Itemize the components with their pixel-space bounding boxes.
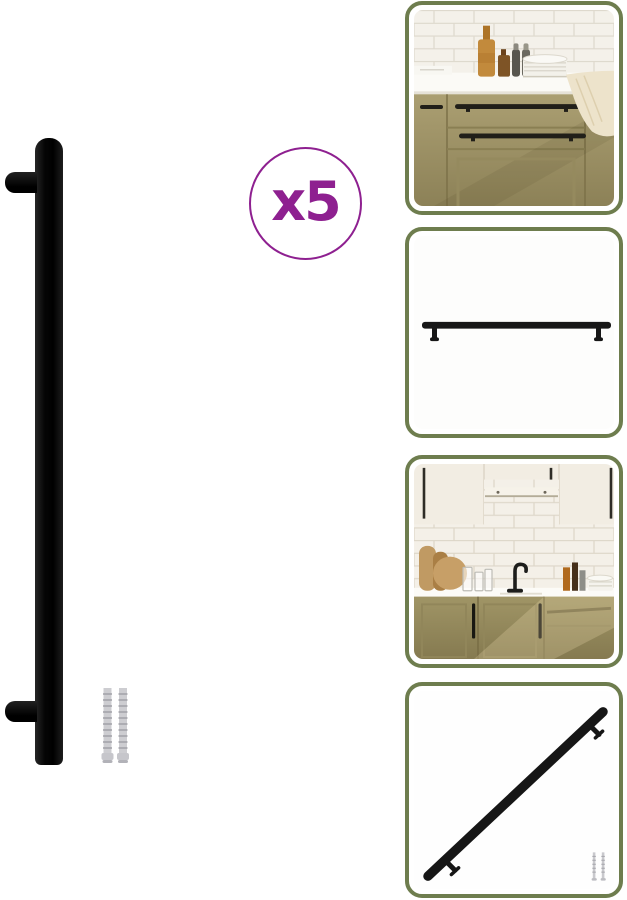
gallery-thumbnail-handle-diagonal[interactable]: [405, 682, 623, 898]
gallery-thumbnail-kitchen-sink[interactable]: [405, 455, 623, 668]
product-image-canvas: x5: [0, 0, 627, 900]
handle-top-post: [5, 172, 37, 193]
handle-bar: [35, 138, 63, 765]
quantity-badge: x5: [249, 147, 362, 260]
range-hood: [485, 487, 558, 496]
handle-horizontal-photo: [414, 236, 614, 429]
plate-stack: [523, 55, 567, 77]
handle-diagonal-photo: [414, 691, 614, 889]
quantity-label: x5: [271, 175, 339, 233]
mounting-screws-icon: [99, 686, 135, 770]
gallery-thumbnail-handle-horizontal[interactable]: [405, 227, 623, 438]
kitchen-sink-photo: [414, 464, 614, 659]
screw-icon: [102, 688, 114, 763]
kitchen-drawers-photo: [414, 10, 614, 206]
gallery-thumbnail-kitchen-drawers[interactable]: [405, 1, 623, 215]
screw-icon: [117, 688, 129, 763]
handle-bottom-post: [5, 701, 37, 722]
